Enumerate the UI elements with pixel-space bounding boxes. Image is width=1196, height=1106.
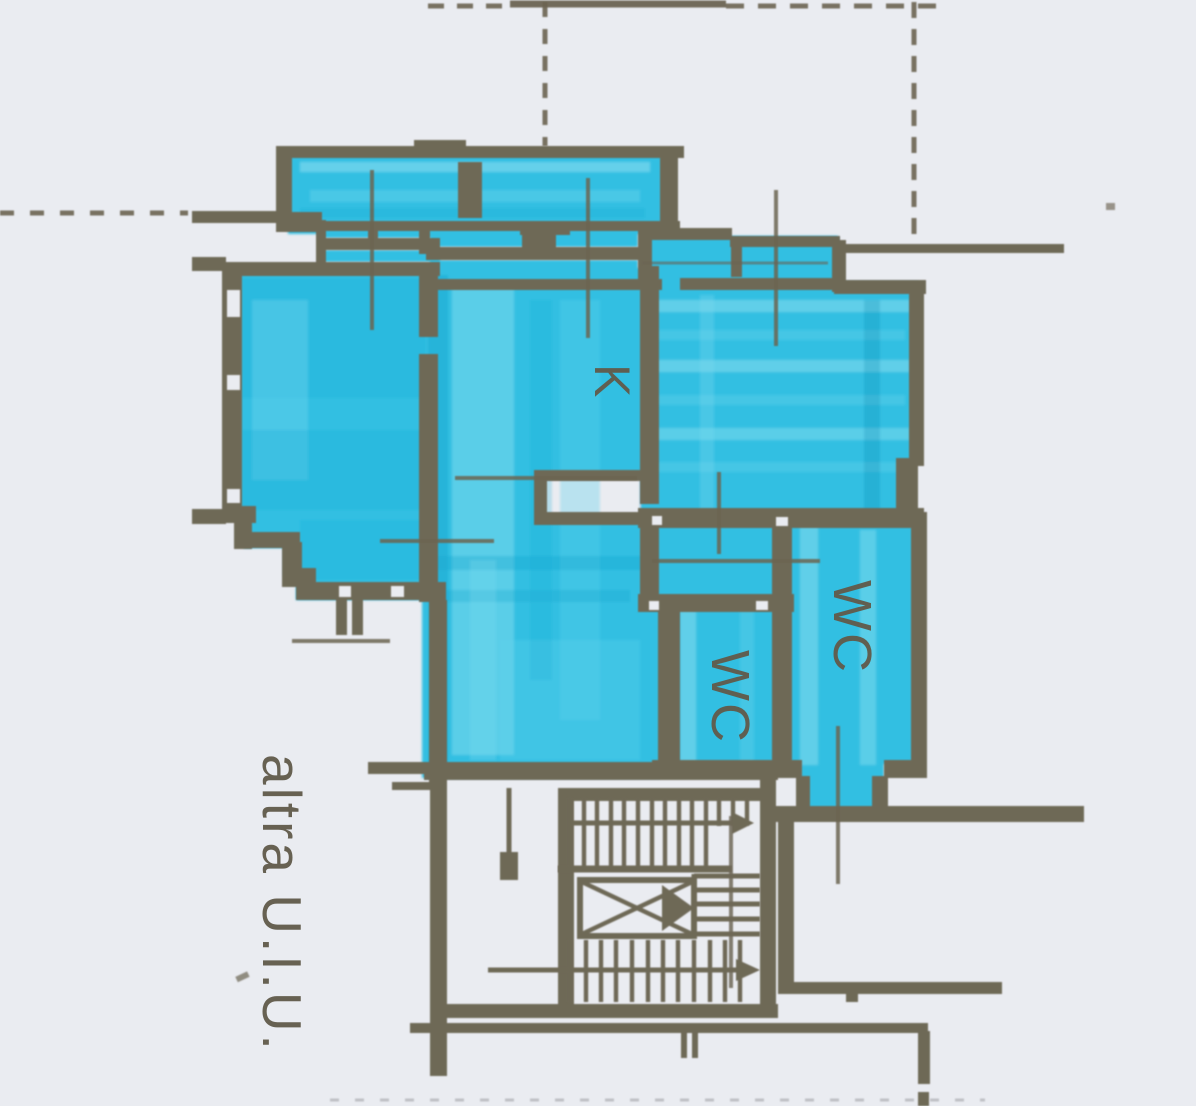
svg-text:WC: WC	[700, 650, 760, 744]
svg-text:K: K	[584, 364, 640, 399]
svg-text:WC: WC	[822, 580, 882, 674]
svg-text:altra U.I.U.: altra U.I.U.	[251, 754, 313, 1053]
